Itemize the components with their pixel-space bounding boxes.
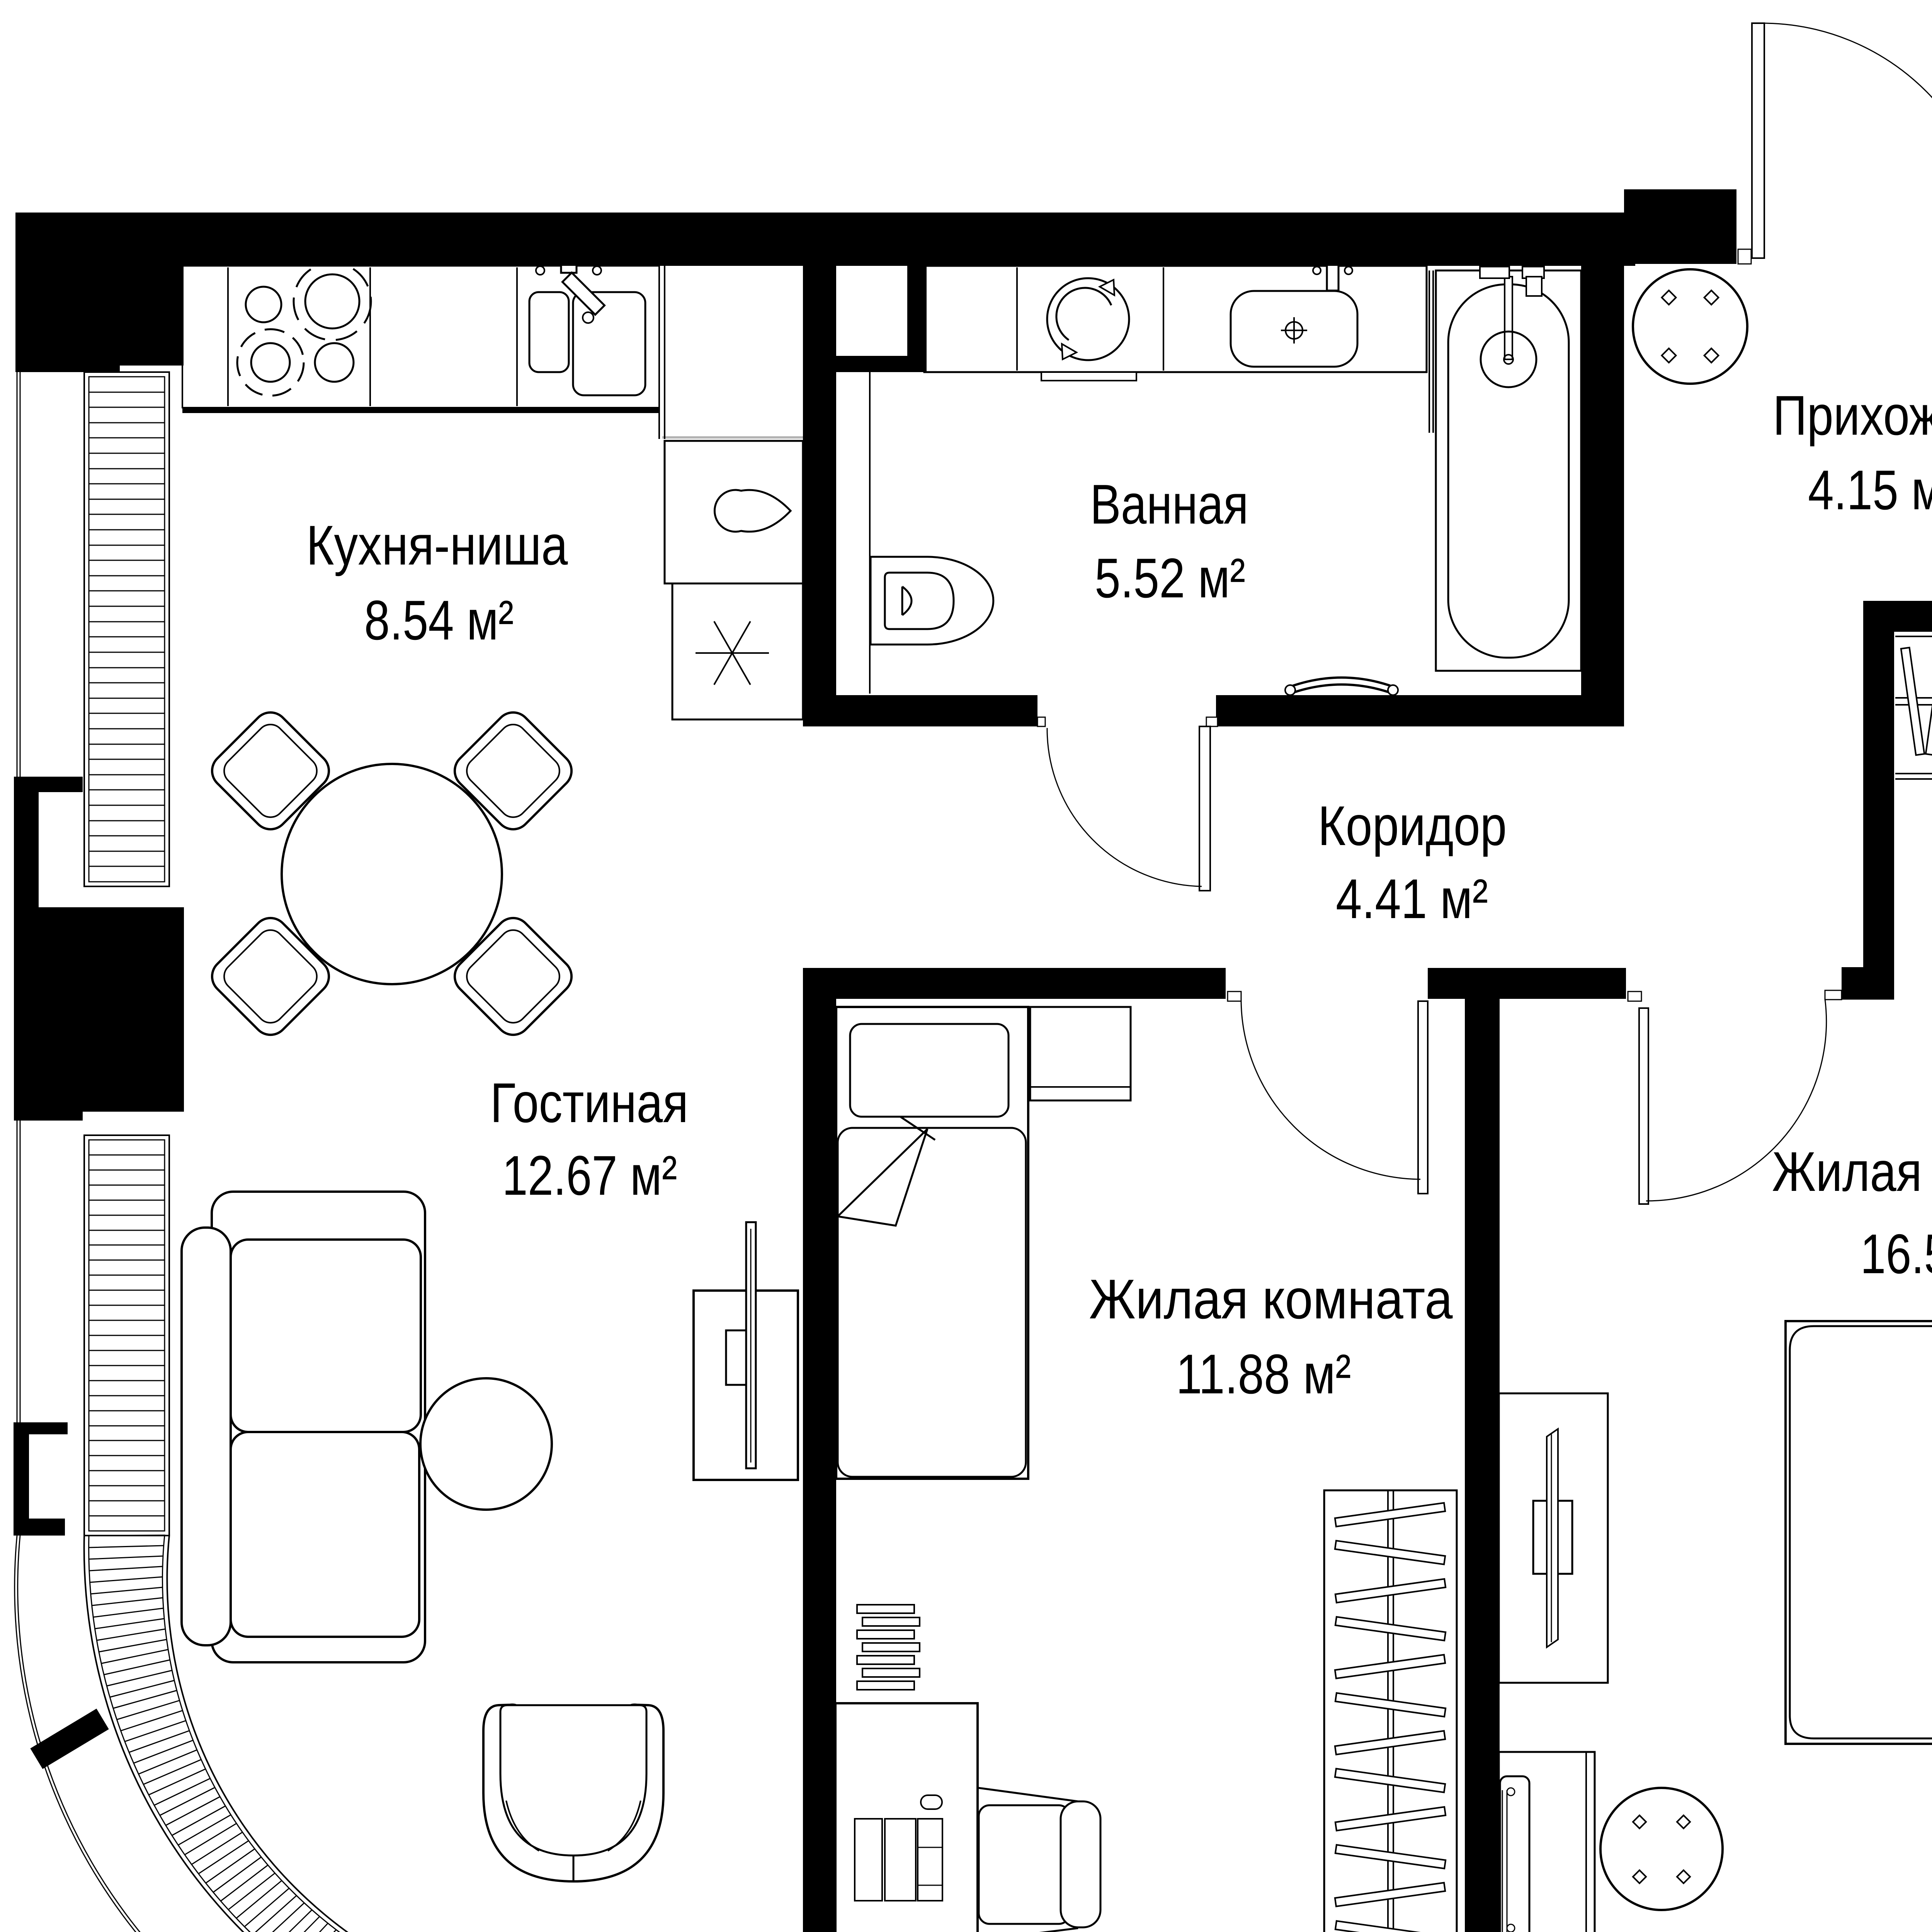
svg-text:Жилая комната: Жилая комната [1772,1140,1932,1203]
svg-text:Гостиная: Гостиная [490,1071,689,1134]
svg-text:Кухня-ниша: Кухня-ниша [306,514,568,577]
svg-text:4.15 м²: 4.15 м² [1808,459,1932,521]
svg-text:4.41 м²: 4.41 м² [1336,867,1488,930]
svg-text:12.67 м²: 12.67 м² [502,1144,677,1207]
svg-text:11.88 м²: 11.88 м² [1176,1343,1351,1405]
svg-text:Прихожая: Прихожая [1773,384,1932,447]
svg-text:Жилая комната: Жилая комната [1089,1268,1453,1330]
svg-text:5.52 м²: 5.52 м² [1095,547,1245,609]
svg-text:Ванная: Ванная [1090,473,1248,536]
svg-text:8.54 м²: 8.54 м² [364,589,514,651]
svg-text:Коридор: Коридор [1318,794,1507,857]
svg-text:16.55 м²: 16.55 м² [1861,1223,1932,1285]
